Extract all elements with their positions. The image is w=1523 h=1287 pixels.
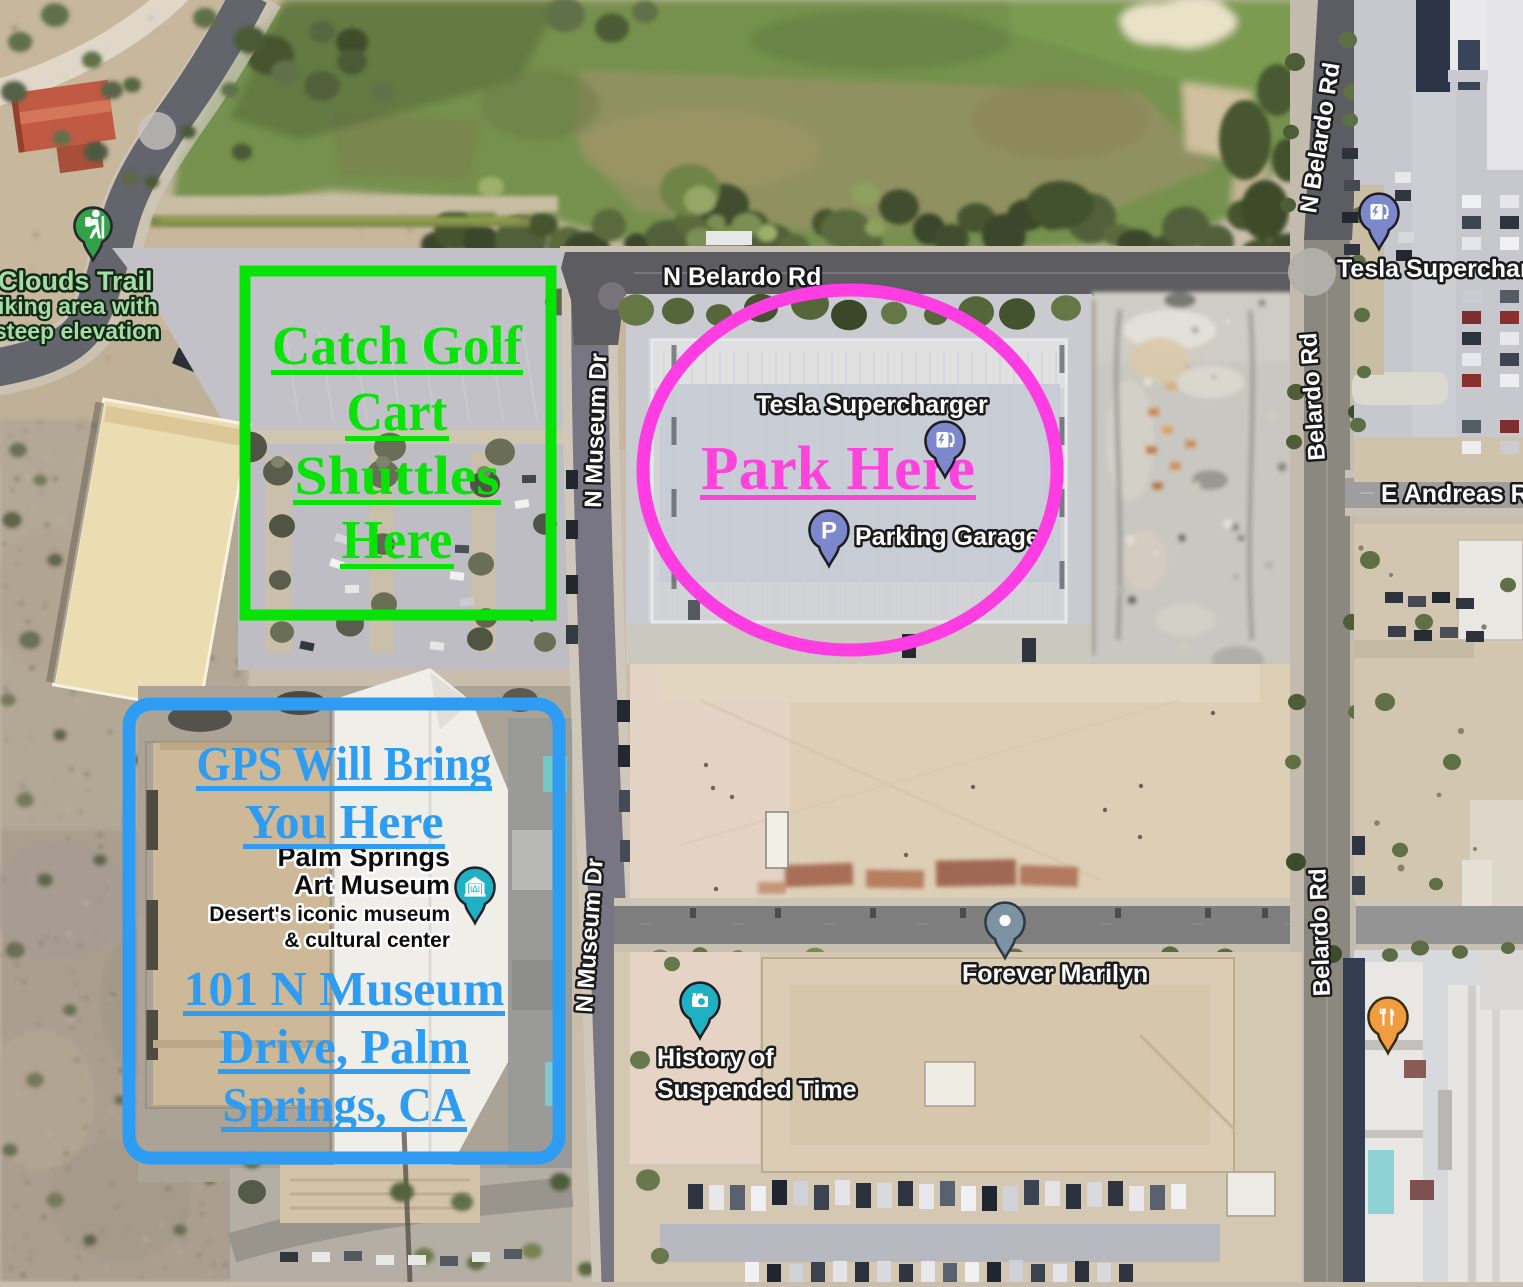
svg-text:M: M: [471, 884, 479, 895]
svg-text:Belardo Rd: Belardo Rd: [1305, 868, 1336, 997]
svg-text:Cart: Cart: [347, 381, 449, 442]
svg-text:Suspended Time: Suspended Time: [657, 1076, 857, 1104]
svg-text:Tesla Supercharger: Tesla Supercharger: [1337, 255, 1523, 283]
svg-text:History of: History of: [657, 1044, 774, 1072]
svg-text:101 N Museum: 101 N Museum: [184, 961, 505, 1016]
svg-text:P: P: [821, 518, 837, 545]
svg-text:steep elevation: steep elevation: [0, 318, 160, 344]
svg-text:N Museum Dr: N Museum Dr: [580, 353, 612, 509]
svg-text:Forever Marilyn: Forever Marilyn: [962, 960, 1148, 988]
svg-text:E Andreas Rd: E Andreas Rd: [1381, 480, 1523, 508]
svg-text:Parking Garage: Parking Garage: [855, 523, 1040, 551]
svg-text:Catch Golf: Catch Golf: [272, 315, 523, 376]
svg-text:Drive, Palm: Drive, Palm: [219, 1019, 469, 1074]
svg-text:Art Museum: Art Museum: [294, 870, 450, 900]
svg-text:hiking area with: hiking area with: [0, 293, 158, 319]
svg-text:Here: Here: [342, 509, 453, 570]
svg-text:N Belardo Rd: N Belardo Rd: [663, 263, 821, 291]
svg-text:You Here: You Here: [245, 794, 444, 849]
svg-text:Shuttles: Shuttles: [295, 445, 500, 506]
svg-text:& cultural center: & cultural center: [284, 929, 450, 952]
svg-text:Clouds Trail: Clouds Trail: [0, 266, 153, 296]
svg-text:Springs, CA: Springs, CA: [223, 1077, 467, 1132]
svg-text:Tesla Supercharger: Tesla Supercharger: [756, 391, 988, 419]
svg-text:Desert's iconic museum: Desert's iconic museum: [209, 903, 450, 926]
svg-text:GPS Will Bring: GPS Will Bring: [197, 736, 492, 791]
